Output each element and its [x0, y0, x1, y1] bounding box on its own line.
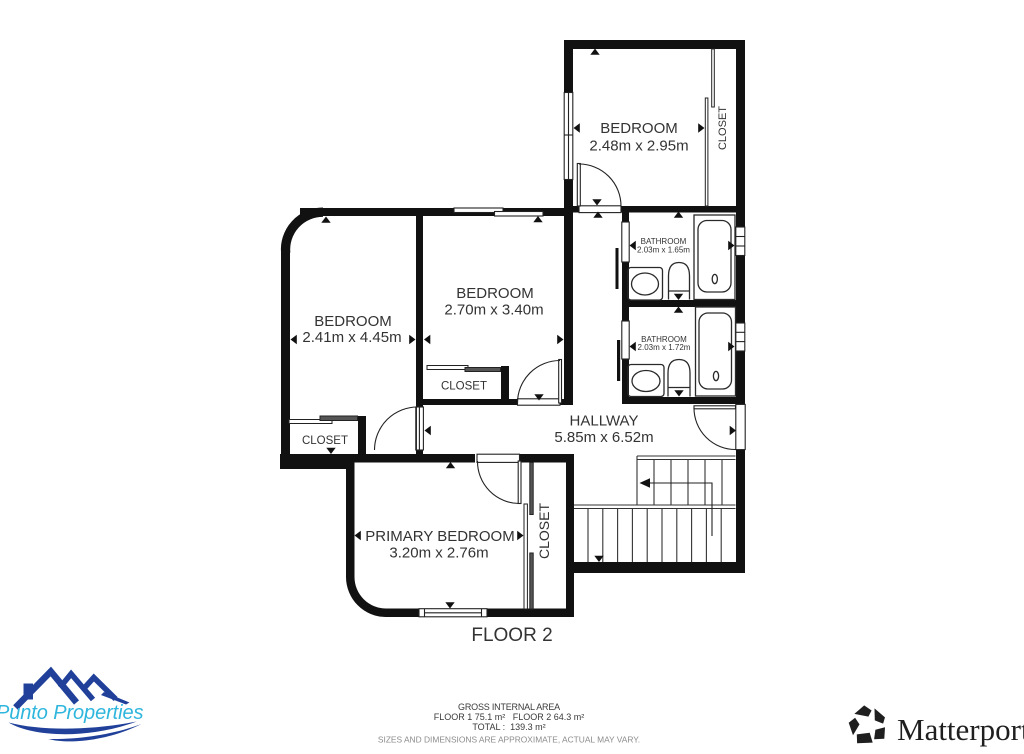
svg-text:2.70m x 3.40m: 2.70m x 3.40m: [444, 302, 543, 319]
svg-text:FLOOR 2: FLOOR 2: [471, 625, 552, 646]
svg-text:BEDROOM: BEDROOM: [456, 285, 534, 302]
svg-text:2.41m x 4.45m: 2.41m x 4.45m: [302, 329, 401, 346]
svg-text:HALLWAY: HALLWAY: [570, 413, 639, 430]
svg-text:5.85m x 6.52m: 5.85m x 6.52m: [554, 429, 653, 446]
svg-text:SIZES AND DIMENSIONS ARE APPRO: SIZES AND DIMENSIONS ARE APPROXIMATE, AC…: [378, 735, 640, 745]
svg-text:GROSS INTERNAL AREA: GROSS INTERNAL AREA: [458, 702, 560, 712]
svg-text:Matterport: Matterport: [897, 712, 1024, 747]
svg-text:CLOSET: CLOSET: [536, 503, 552, 559]
svg-text:CLOSET: CLOSET: [717, 106, 729, 150]
svg-text:CLOSET: CLOSET: [302, 435, 348, 447]
svg-text:CLOSET: CLOSET: [441, 381, 487, 393]
svg-text:TOTAL : 139.3 m²: TOTAL : 139.3 m²: [472, 722, 545, 732]
svg-text:2.03m x 1.72m: 2.03m x 1.72m: [638, 343, 691, 352]
svg-text:Punto Properties: Punto Properties: [0, 702, 143, 724]
svg-text:PRIMARY BEDROOM: PRIMARY BEDROOM: [365, 528, 514, 545]
svg-text:2.48m x 2.95m: 2.48m x 2.95m: [589, 138, 688, 155]
svg-text:BEDROOM: BEDROOM: [314, 313, 392, 330]
svg-text:FLOOR 1 75.1 m² FLOOR 2 64.3: FLOOR 1 75.1 m² FLOOR 2 64.3 m²: [434, 712, 585, 722]
svg-text:BEDROOM: BEDROOM: [600, 120, 678, 137]
svg-text:3.20m x 2.76m: 3.20m x 2.76m: [389, 545, 488, 562]
svg-text:2.03m x 1.65m: 2.03m x 1.65m: [637, 246, 690, 255]
